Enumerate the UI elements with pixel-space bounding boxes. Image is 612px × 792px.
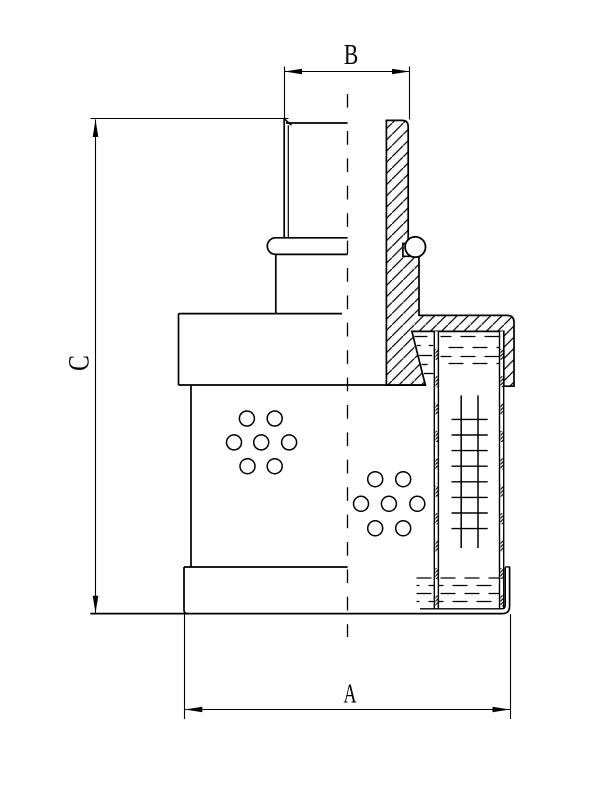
svg-text:A: A — [343, 679, 356, 708]
svg-text:C: C — [62, 355, 95, 371]
svg-text:B: B — [344, 38, 358, 71]
